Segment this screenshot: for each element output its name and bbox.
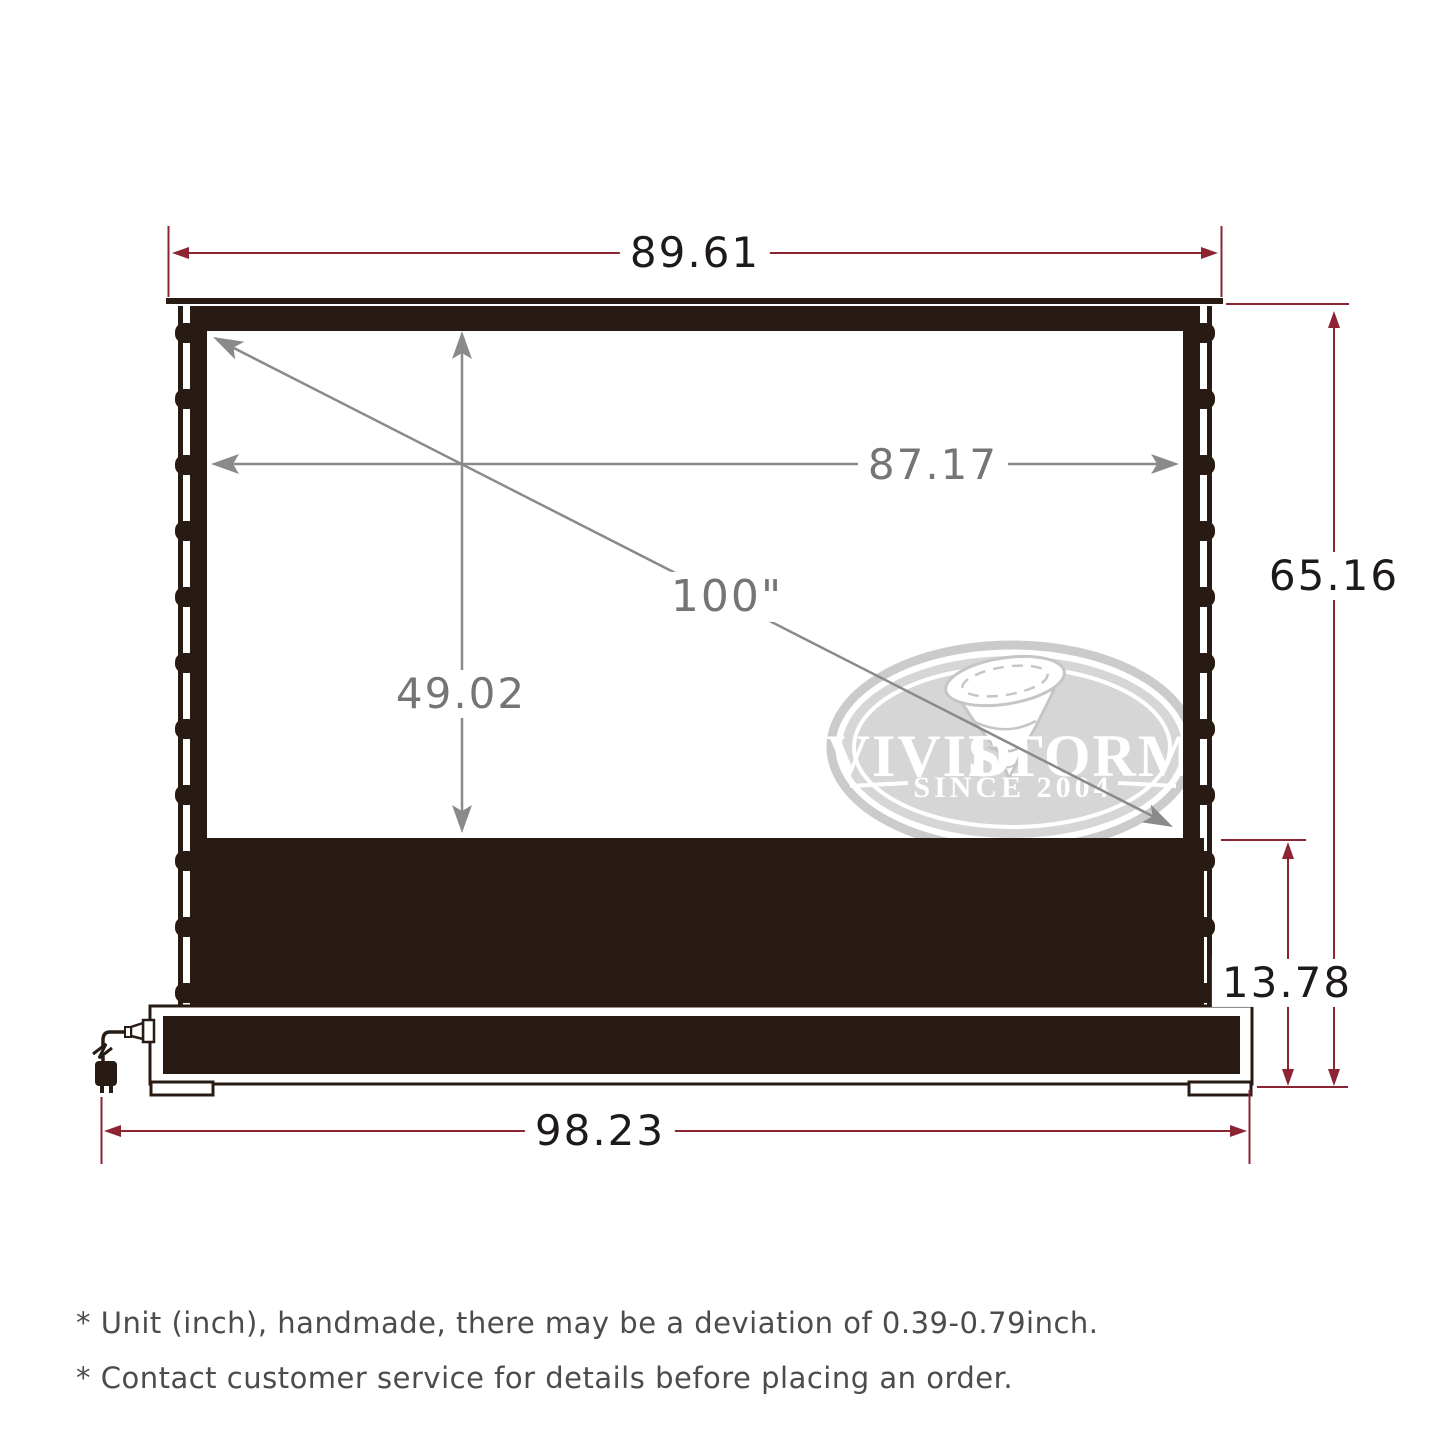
red-arrow-right-98-icon	[1230, 1125, 1247, 1137]
plug-icon	[95, 1061, 117, 1086]
base-housing	[150, 1006, 1252, 1095]
vividstorm-logo: VIVID STORM SINCE 2004	[827, 645, 1197, 849]
logo-text-since: SINCE 2004	[913, 771, 1112, 804]
arrow-diagonal-upleft-icon	[213, 337, 244, 360]
plug-prong-right	[109, 1086, 113, 1093]
housing-width-value: 89.61	[620, 229, 770, 277]
footnotes: * Unit (inch), handmade, there may be a …	[76, 1306, 1099, 1416]
base-width-value: 98.23	[525, 1107, 675, 1155]
power-cord	[93, 1020, 154, 1093]
riser-height-value: 13.78	[1212, 959, 1362, 1007]
plug-prong-left	[100, 1086, 104, 1093]
footnote-contact: * Contact customer service for details b…	[76, 1361, 1099, 1395]
base-foot-left	[151, 1082, 213, 1095]
power-inlet-cone	[131, 1023, 143, 1039]
cord-break-mark	[93, 1044, 112, 1058]
diagram-drawing: VIVID STORM SINCE 2004	[0, 0, 1445, 1445]
overall-height-value: 65.16	[1259, 552, 1409, 600]
red-arrow-down-13-icon	[1282, 1069, 1294, 1086]
red-arrow-left-icon	[172, 247, 189, 259]
viewing-height-value: 49.02	[386, 670, 536, 718]
diagonal-size-value: 100"	[661, 572, 793, 622]
red-arrow-up-65-icon	[1328, 311, 1340, 328]
top-slat	[166, 298, 1223, 304]
red-arrow-down-65-icon	[1328, 1069, 1340, 1086]
power-inlet-tip	[125, 1027, 131, 1037]
projector-screen-dimension-diagram: VIVID STORM SINCE 2004	[0, 0, 1445, 1445]
footnote-unit: * Unit (inch), handmade, there may be a …	[76, 1306, 1099, 1340]
power-inlet	[143, 1020, 154, 1042]
base-foot-right	[1189, 1082, 1251, 1095]
red-arrow-left-98-icon	[104, 1125, 121, 1137]
base-slab	[163, 1016, 1240, 1074]
black-drop-section	[198, 838, 1204, 1007]
red-arrow-right-icon	[1201, 247, 1218, 259]
red-arrow-up-13-icon	[1282, 842, 1294, 859]
viewing-width-value: 87.17	[858, 441, 1008, 489]
frame-top-bar	[190, 306, 1200, 331]
